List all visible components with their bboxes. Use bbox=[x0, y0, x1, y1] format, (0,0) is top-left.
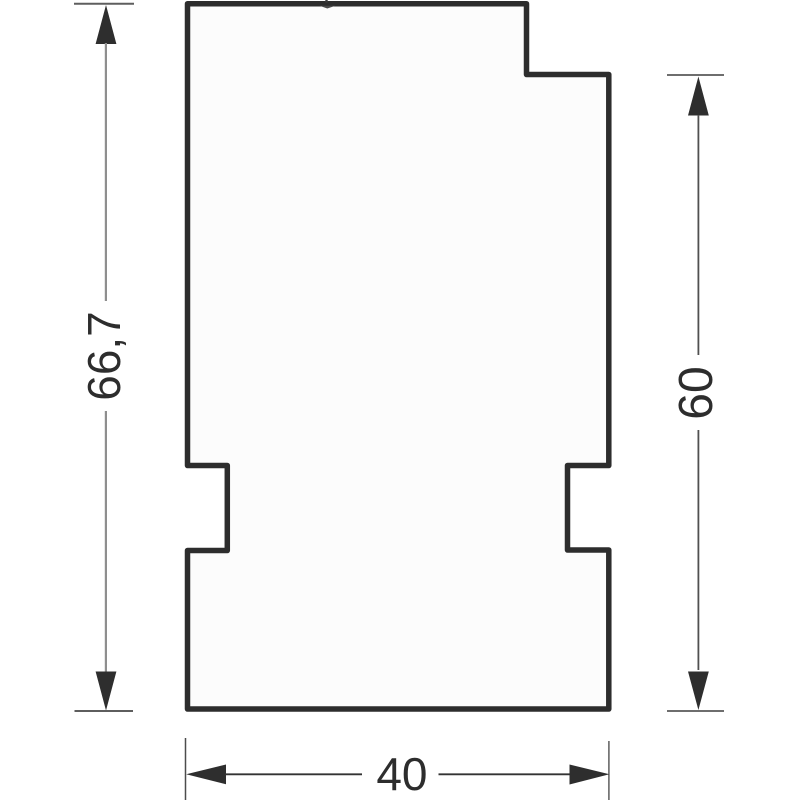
svg-text:66,7: 66,7 bbox=[78, 311, 130, 401]
svg-text:60: 60 bbox=[670, 366, 723, 419]
svg-text:40: 40 bbox=[376, 748, 427, 800]
